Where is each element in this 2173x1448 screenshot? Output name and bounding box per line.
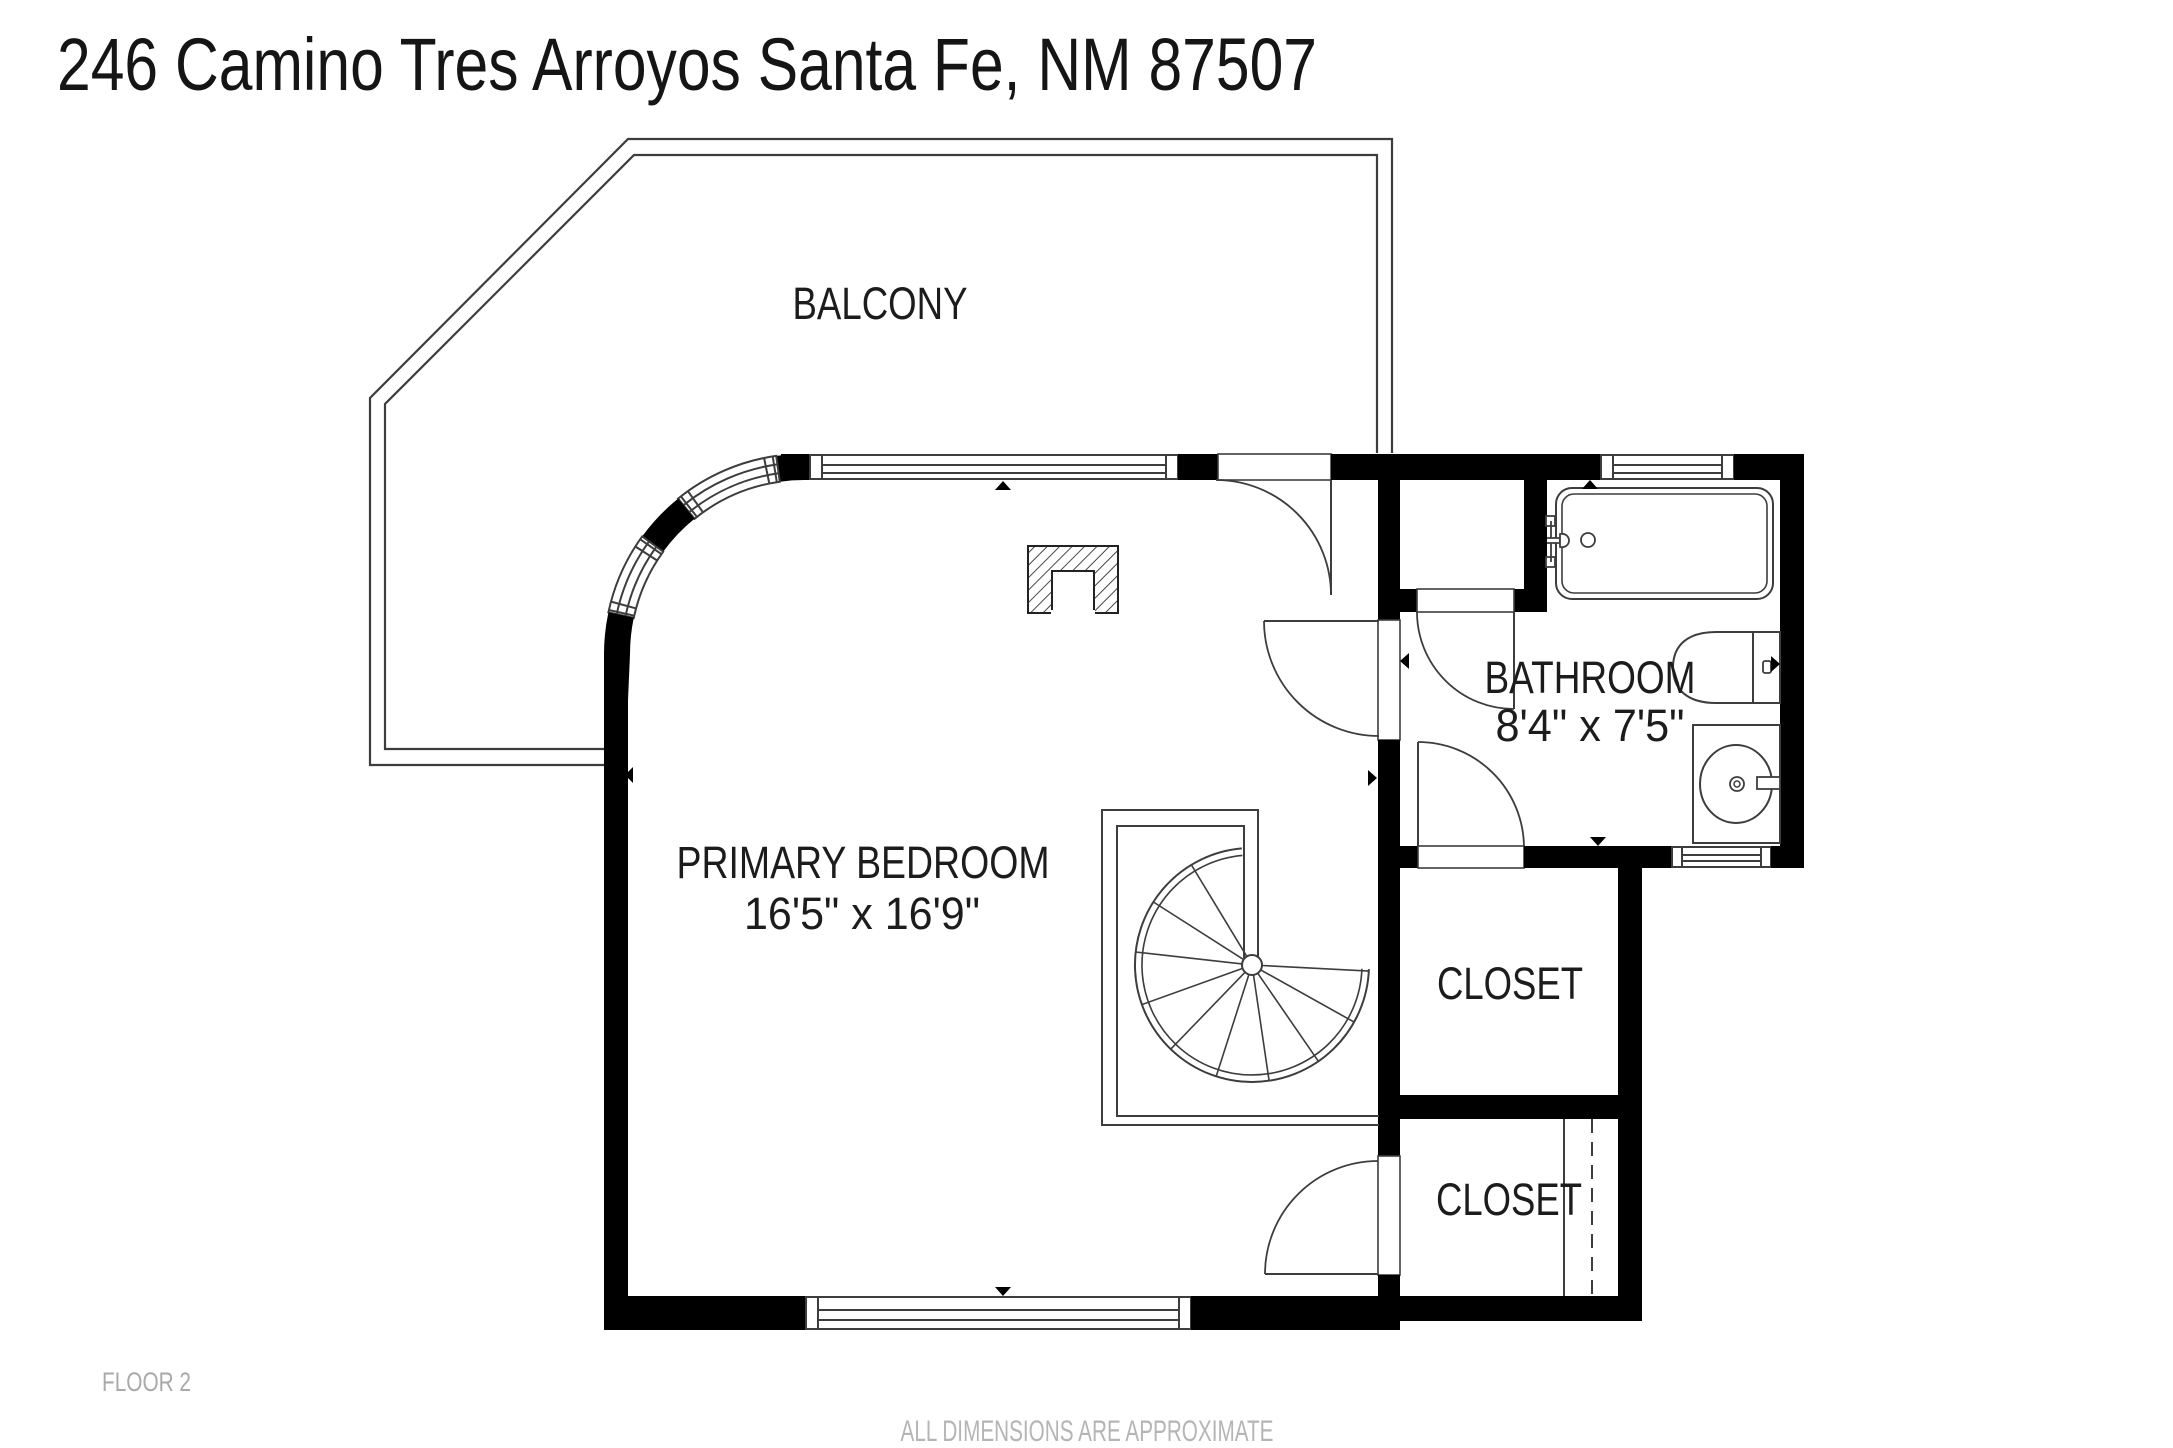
svg-text:BALCONY: BALCONY — [793, 278, 968, 329]
svg-text:8'4" x 7'5": 8'4" x 7'5" — [1496, 700, 1685, 751]
svg-text:ALL DIMENSIONS ARE APPROXIMATE: ALL DIMENSIONS ARE APPROXIMATE — [901, 1415, 1274, 1448]
svg-text:BATHROOM: BATHROOM — [1485, 652, 1696, 703]
svg-text:16'5" x 16'9": 16'5" x 16'9" — [744, 888, 980, 939]
svg-text:PRIMARY BEDROOM: PRIMARY BEDROOM — [677, 837, 1050, 888]
svg-text:CLOSET: CLOSET — [1436, 1174, 1582, 1225]
svg-text:246 Camino Tres Arroyos Santa: 246 Camino Tres Arroyos Santa Fe, NM 875… — [57, 23, 1317, 106]
svg-text:FLOOR 2: FLOOR 2 — [102, 1367, 191, 1397]
svg-text:CLOSET: CLOSET — [1437, 958, 1583, 1009]
